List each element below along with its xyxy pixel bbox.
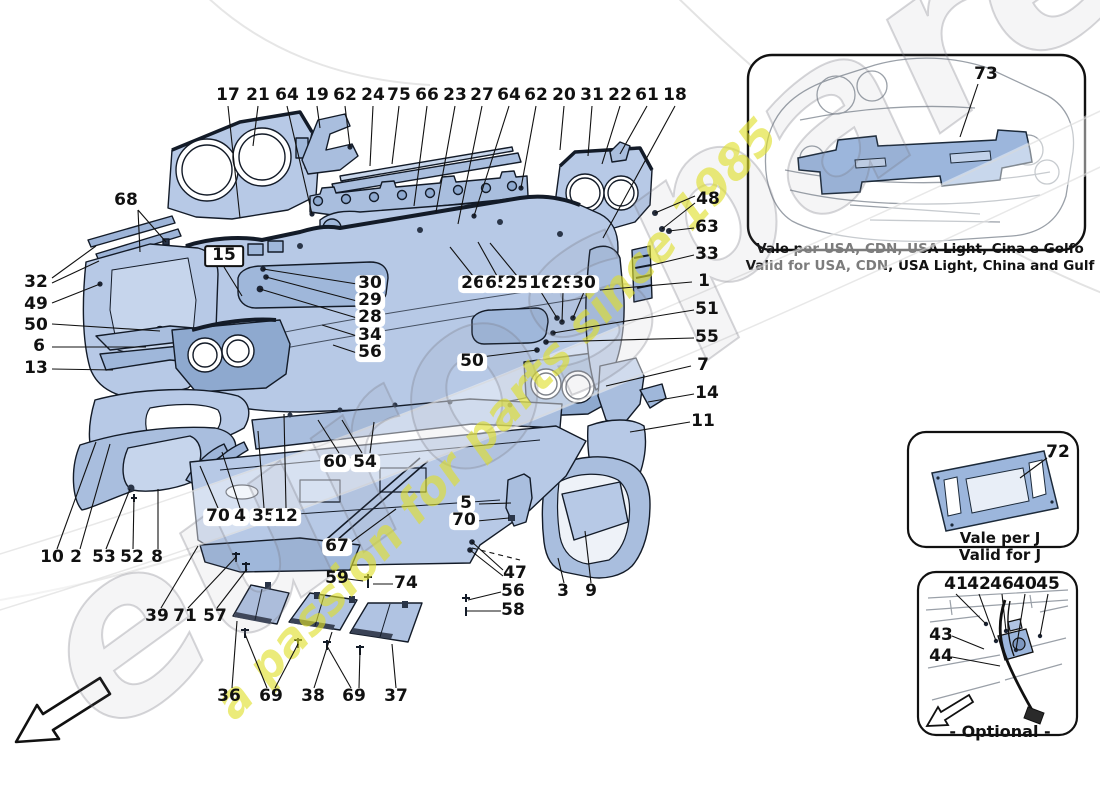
callout-75[interactable]: 75: [387, 87, 411, 105]
callout-68[interactable]: 68: [114, 192, 138, 210]
leader-line: [560, 106, 564, 150]
callout-9[interactable]: 9: [585, 583, 597, 601]
callout-40[interactable]: 40: [1013, 576, 1037, 594]
leader-line: [470, 550, 503, 576]
callout-70[interactable]: 70: [449, 512, 479, 530]
callout-30[interactable]: 30: [569, 275, 599, 293]
callout-1[interactable]: 1: [698, 273, 710, 291]
callout-48[interactable]: 48: [696, 191, 720, 209]
callout-49[interactable]: 49: [24, 296, 48, 314]
callout-62[interactable]: 62: [524, 87, 548, 105]
callout-71[interactable]: 71: [173, 608, 197, 626]
callout-17[interactable]: 17: [216, 87, 240, 105]
leader-line: [327, 646, 351, 688]
callout-19[interactable]: 19: [305, 87, 329, 105]
callout-11[interactable]: 11: [691, 413, 715, 431]
callout-74[interactable]: 74: [394, 575, 418, 593]
callout-10[interactable]: 10: [40, 549, 64, 567]
callout-52[interactable]: 52: [120, 549, 144, 567]
callout-64[interactable]: 64: [497, 87, 521, 105]
optional-caption: - Optional -: [949, 722, 1050, 741]
callout-21[interactable]: 21: [246, 87, 270, 105]
callout-14[interactable]: 14: [695, 385, 719, 403]
leader-line: [392, 644, 396, 688]
callout-58[interactable]: 58: [501, 602, 525, 620]
callout-70[interactable]: 70: [203, 508, 233, 526]
part-taillight-housing-left: [168, 112, 318, 219]
callout-24[interactable]: 24: [361, 87, 385, 105]
callout-62[interactable]: 62: [333, 87, 357, 105]
callout-72[interactable]: 72: [1046, 444, 1070, 462]
callout-55[interactable]: 55: [695, 329, 719, 347]
callout-33[interactable]: 33: [695, 246, 719, 264]
callout-50[interactable]: 50: [24, 317, 48, 335]
callout-44[interactable]: 44: [929, 648, 953, 666]
callout-6[interactable]: 6: [33, 338, 45, 356]
leader-line: [392, 106, 399, 164]
callout-41[interactable]: 41: [944, 576, 968, 594]
parts-diagram-page: Vale per USA, CDN, USA Light, Cina e Gol…: [0, 0, 1100, 800]
callout-39[interactable]: 39: [145, 608, 169, 626]
callout-32[interactable]: 32: [24, 274, 48, 292]
callout-73[interactable]: 73: [974, 66, 998, 84]
callout-7[interactable]: 7: [697, 357, 709, 375]
leader-line: [359, 650, 360, 688]
callout-43[interactable]: 43: [929, 627, 953, 645]
callout-3[interactable]: 3: [557, 583, 569, 601]
callout-12[interactable]: 12: [271, 508, 301, 526]
callout-38[interactable]: 38: [301, 688, 325, 706]
callout-36[interactable]: 36: [217, 688, 241, 706]
callout-60[interactable]: 60: [320, 454, 350, 472]
callout-54[interactable]: 54: [350, 454, 380, 472]
leader-line: [468, 592, 501, 600]
leader-line: [472, 548, 520, 560]
japan-caption-en: Valid for J: [959, 546, 1041, 564]
callout-57[interactable]: 57: [203, 608, 227, 626]
callout-37[interactable]: 37: [384, 688, 408, 706]
callout-61[interactable]: 61: [635, 87, 659, 105]
callout-31[interactable]: 31: [580, 87, 604, 105]
callout-59[interactable]: 59: [325, 570, 349, 588]
callout-69[interactable]: 69: [259, 688, 283, 706]
callout-51[interactable]: 51: [695, 301, 719, 319]
callout-56[interactable]: 56: [355, 344, 385, 362]
parts-diagram-svg: Vale per USA, CDN, USA Light, Cina e Gol…: [0, 0, 1100, 800]
callout-27[interactable]: 27: [470, 87, 494, 105]
japan-caption-it: Vale per J: [960, 529, 1041, 547]
callout-4[interactable]: 4: [231, 508, 249, 526]
callout-13[interactable]: 13: [24, 360, 48, 378]
callout-46[interactable]: 46: [990, 576, 1014, 594]
callout-69[interactable]: 69: [342, 688, 366, 706]
callout-45[interactable]: 45: [1036, 576, 1060, 594]
callout-20[interactable]: 20: [552, 87, 576, 105]
callout-42[interactable]: 42: [967, 576, 991, 594]
callout-15[interactable]: 15: [204, 245, 244, 267]
callout-53[interactable]: 53: [92, 549, 116, 567]
callout-8[interactable]: 8: [151, 549, 163, 567]
callout-63[interactable]: 63: [695, 219, 719, 237]
callout-66[interactable]: 66: [415, 87, 439, 105]
leader-line: [472, 542, 503, 570]
callout-50[interactable]: 50: [457, 353, 487, 371]
callout-18[interactable]: 18: [663, 87, 687, 105]
callout-56[interactable]: 56: [501, 583, 525, 601]
callout-23[interactable]: 23: [443, 87, 467, 105]
callout-64[interactable]: 64: [275, 87, 299, 105]
callout-22[interactable]: 22: [608, 87, 632, 105]
callout-2[interactable]: 2: [70, 549, 82, 567]
callout-67[interactable]: 67: [322, 538, 352, 556]
leader-line: [370, 106, 373, 166]
